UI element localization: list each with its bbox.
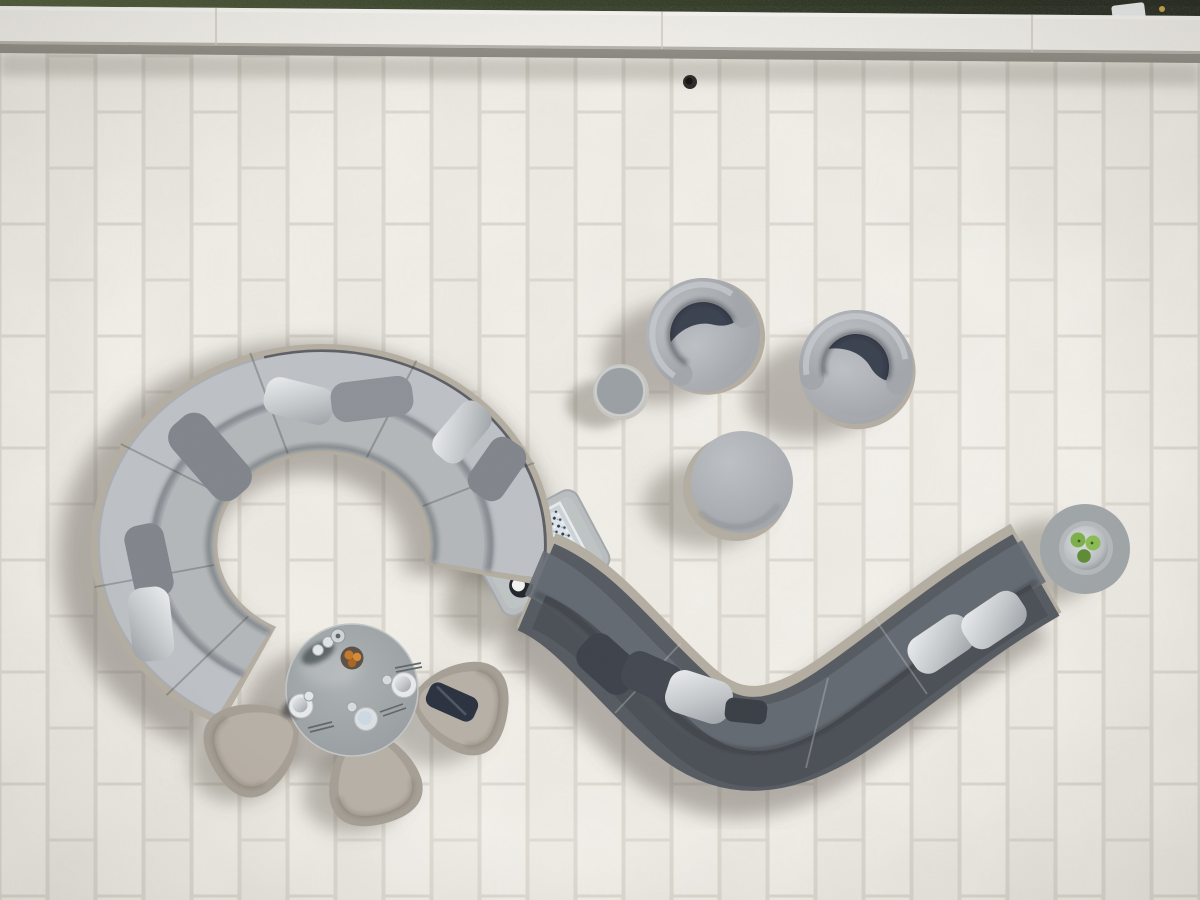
terrace-photo <box>0 0 1200 900</box>
photo-grain <box>0 0 1200 900</box>
terrace-scene <box>0 0 1200 900</box>
